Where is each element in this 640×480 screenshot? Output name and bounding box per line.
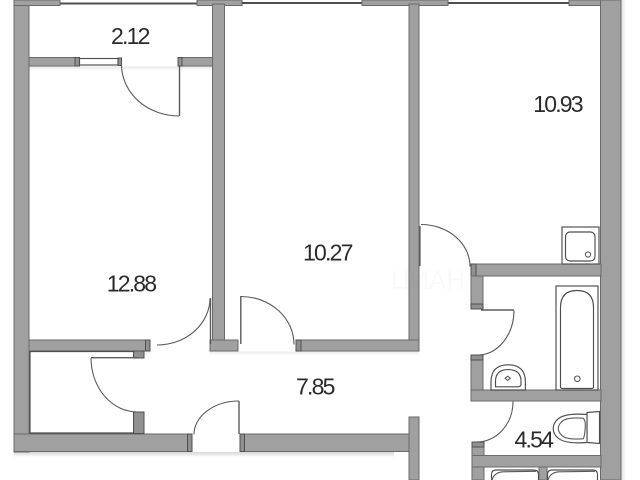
svg-text:10.93: 10.93 [533,91,583,117]
svg-text:ЦИАН: ЦИАН [391,265,465,295]
svg-text:7.85: 7.85 [296,374,335,400]
svg-text:10.27: 10.27 [303,240,353,266]
svg-text:4.54: 4.54 [515,427,555,453]
svg-text:12.88: 12.88 [107,271,157,297]
svg-text:2.12: 2.12 [111,23,150,49]
